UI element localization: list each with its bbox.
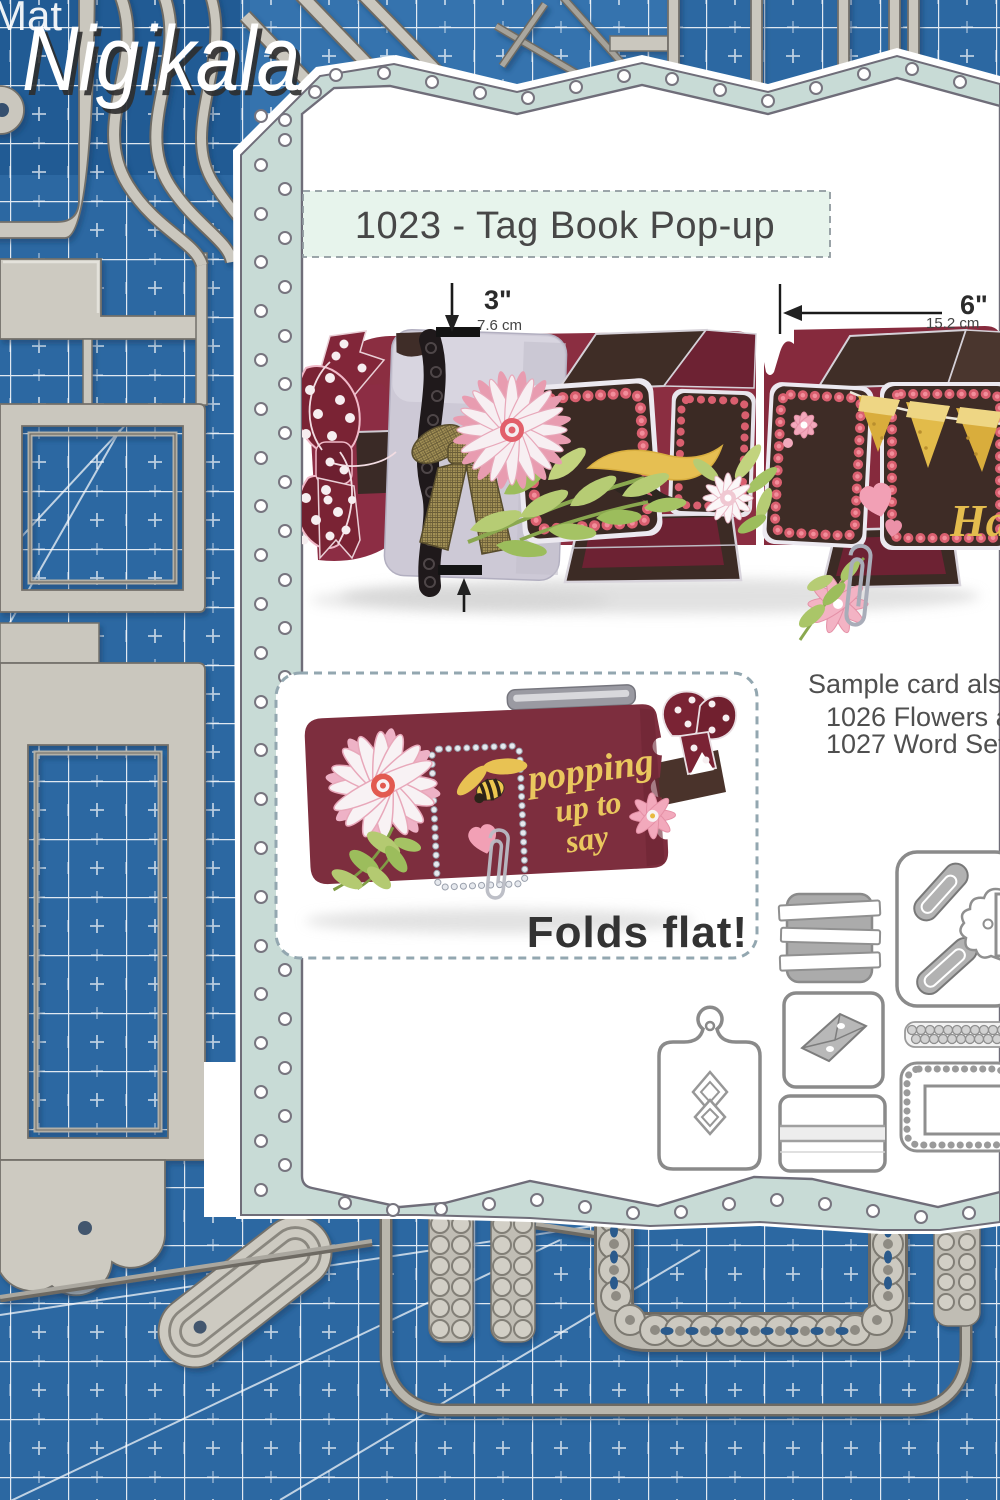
svg-text:7.6 cm: 7.6 cm	[477, 317, 522, 334]
svg-text:say: say	[562, 818, 611, 860]
svg-text:3": 3"	[484, 285, 512, 315]
svg-text:Sample card also u: Sample card also u	[808, 669, 1000, 699]
svg-text:15.2 cm: 15.2 cm	[926, 315, 979, 332]
svg-text:Nigikala: Nigikala	[22, 8, 300, 110]
svg-text:1023 - Tag Book Pop-up: 1023 - Tag Book Pop-up	[355, 205, 775, 247]
svg-text:1026 Flowers and: 1026 Flowers and	[826, 702, 1000, 732]
svg-text:1027 Word Set 4x: 1027 Word Set 4x	[826, 729, 1000, 759]
svg-text:Ha: Ha	[949, 495, 1000, 546]
svg-text:Folds flat!: Folds flat!	[527, 908, 748, 957]
